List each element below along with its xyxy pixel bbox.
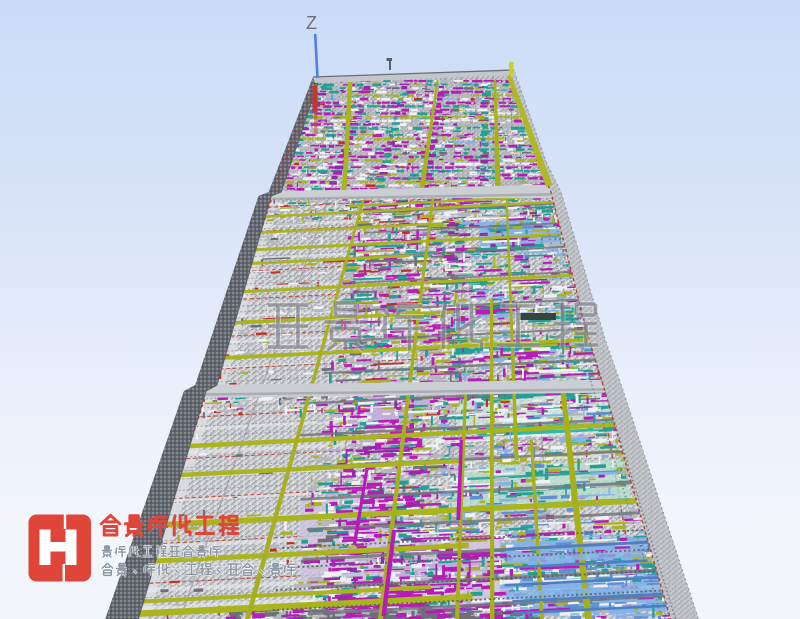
svg-text:Z: Z [306,13,317,33]
